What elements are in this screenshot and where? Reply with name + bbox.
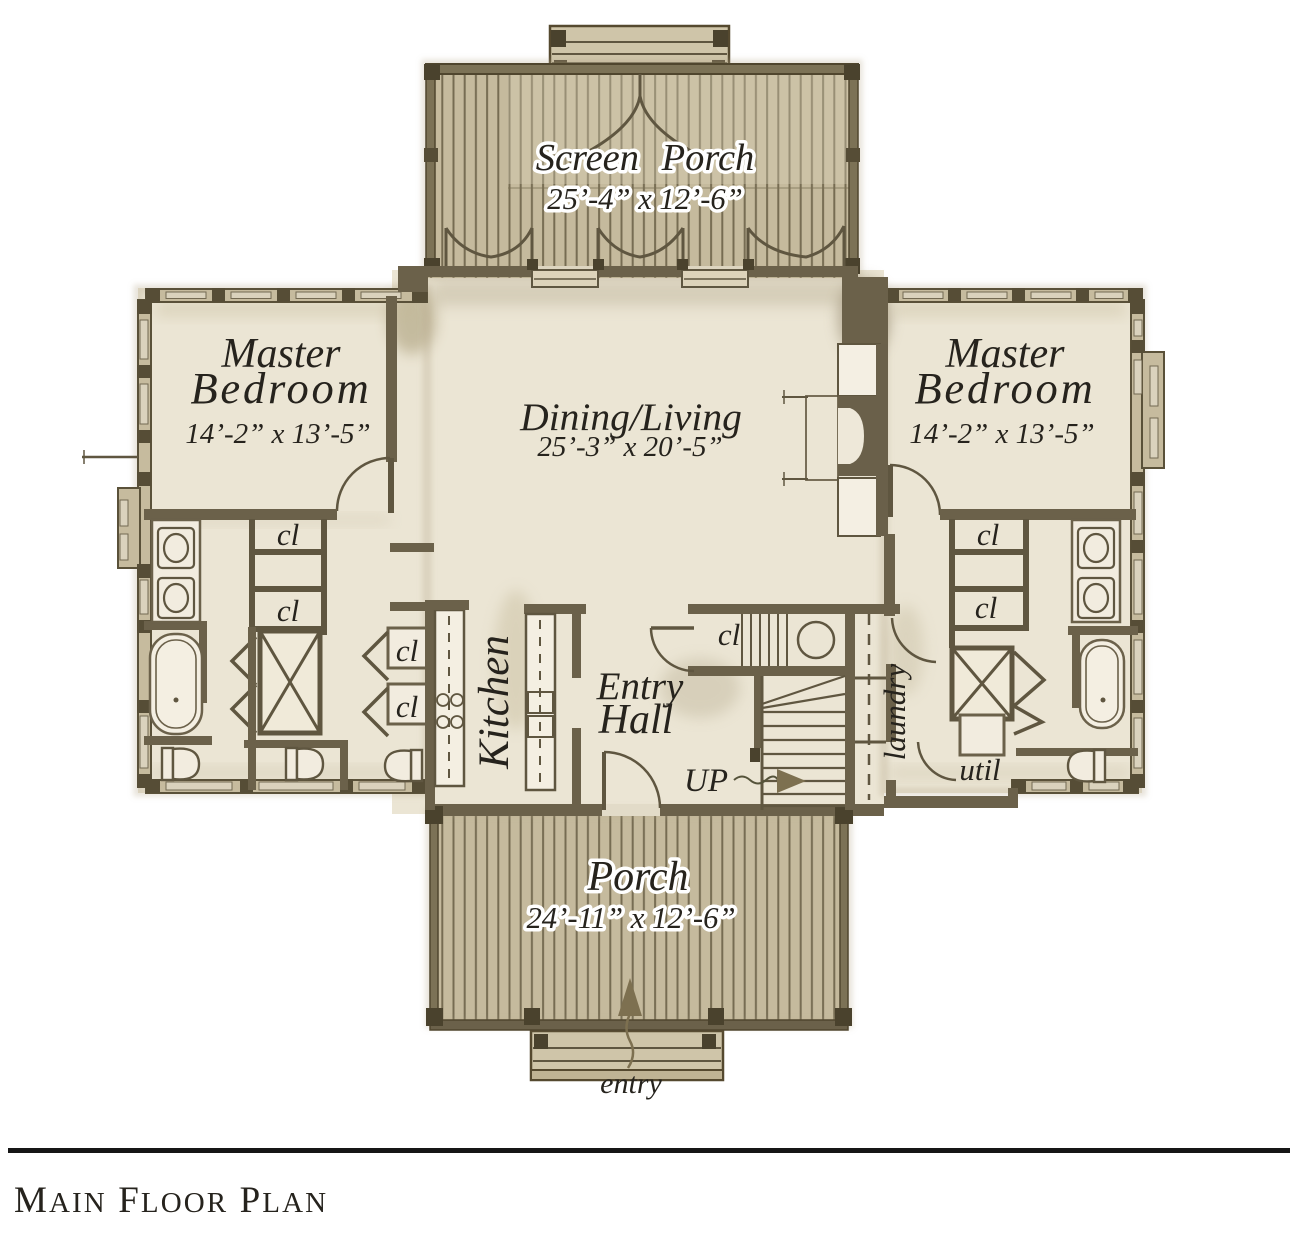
svg-text:24’-11” x 12’-6”: 24’-11” x 12’-6” — [526, 901, 735, 935]
svg-text:25’-3” x 20’-5”: 25’-3” x 20’-5” — [537, 431, 722, 463]
svg-text:Bedroom: Bedroom — [914, 363, 1095, 413]
svg-text:cl: cl — [396, 689, 418, 724]
svg-text:laundry: laundry — [877, 664, 912, 761]
svg-text:14’-2” x 13’-5”: 14’-2” x 13’-5” — [909, 418, 1094, 450]
svg-text:entry: entry — [600, 1067, 662, 1100]
svg-text:Bedroom: Bedroom — [190, 363, 371, 413]
svg-text:Hall: Hall — [598, 697, 674, 743]
svg-text:util: util — [959, 752, 1000, 787]
svg-text:cl: cl — [277, 517, 299, 552]
svg-text:25’-4” x 12’-6”: 25’-4” x 12’-6” — [547, 182, 742, 216]
svg-text:Screen Porch: Screen Porch — [536, 137, 755, 179]
svg-text:UP: UP — [684, 763, 728, 799]
svg-text:Porch: Porch — [586, 854, 688, 900]
svg-text:cl: cl — [277, 593, 299, 628]
svg-text:14’-2” x 13’-5”: 14’-2” x 13’-5” — [185, 418, 370, 450]
svg-text:cl: cl — [718, 617, 740, 652]
svg-text:cl: cl — [396, 633, 418, 668]
svg-text:MAIN FLOOR PLAN: MAIN FLOOR PLAN — [14, 1180, 328, 1221]
svg-text:Kitchen: Kitchen — [471, 635, 518, 770]
svg-text:cl: cl — [977, 517, 999, 552]
svg-text:cl: cl — [975, 590, 997, 625]
